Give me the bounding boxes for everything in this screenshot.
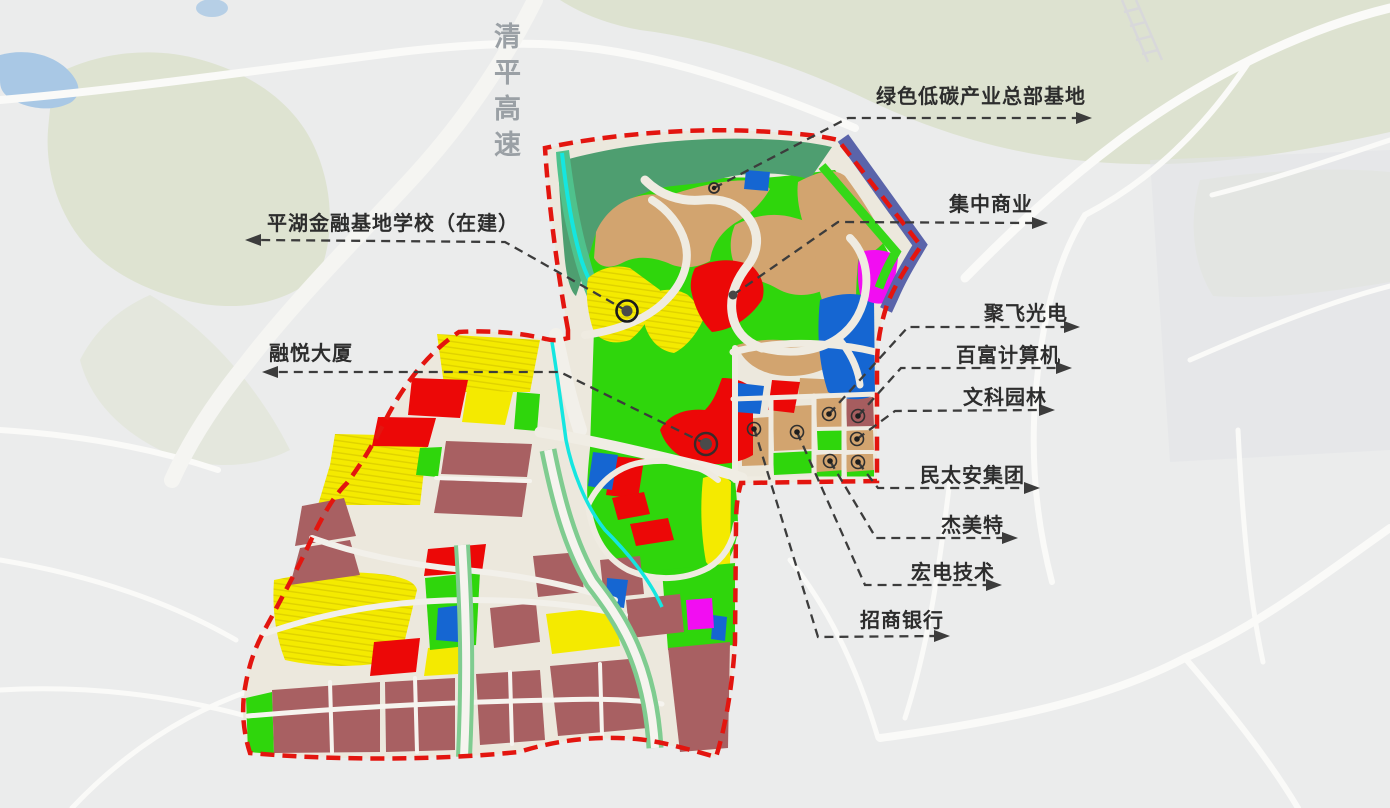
callout-central-commerce-label: 集中商业 [949, 194, 1033, 216]
callout-wenke-landscape-label: 文科园林 [963, 387, 1047, 409]
callout-jufei-optoelectronics-label: 聚飞光电 [984, 303, 1068, 325]
central-commerce-marker [729, 291, 738, 300]
callout-pinghu-finance-school-label: 平湖金融基地学校（在建） [267, 213, 519, 235]
callout-cmb-bank-label: 招商银行 [860, 610, 944, 632]
planning-map: 清平高速 绿色低碳产业总部基地 平湖金融基地学校（在建） 集中商业 聚飞光电 百… [0, 0, 1390, 808]
expressway-label: 清平高速 [486, 22, 525, 166]
planning-map-svg [0, 0, 1390, 808]
callout-pax-computer-label: 百富计算机 [956, 345, 1061, 367]
callout-green-lowcarbon-base-label: 绿色低碳产业总部基地 [876, 86, 1086, 108]
callout-mintaian-group-label: 民太安集团 [920, 465, 1025, 487]
callout-rongyue-tower-label: 融悦大厦 [269, 343, 353, 365]
callout-hongdian-tech-label: 宏电技术 [911, 562, 995, 584]
callout-jiemeite-label: 杰美特 [941, 515, 1004, 537]
